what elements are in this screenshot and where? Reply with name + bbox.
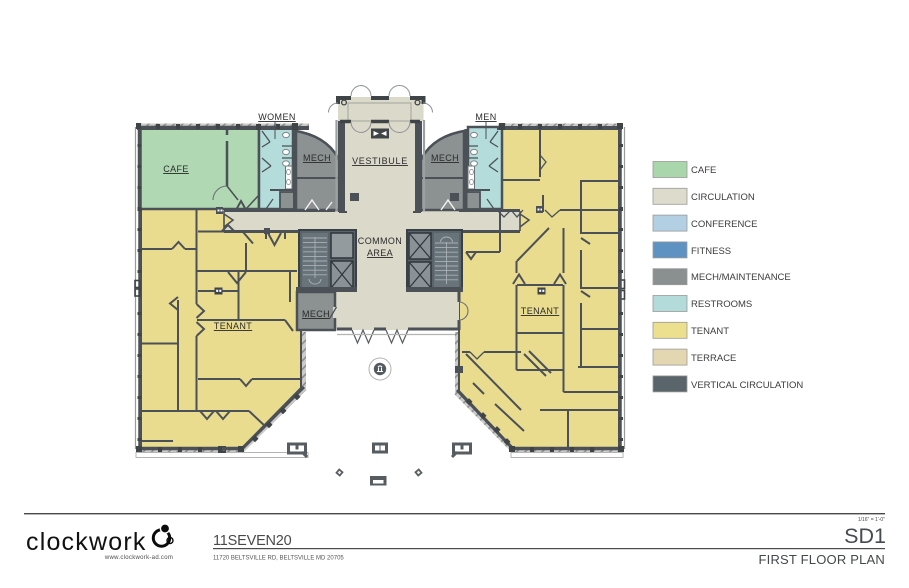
svg-text:MEN: MEN	[475, 112, 496, 122]
svg-text:TENANT: TENANT	[214, 321, 253, 331]
svg-text:FIRST FLOOR PLAN: FIRST FLOOR PLAN	[759, 552, 885, 567]
svg-text:TERRACE: TERRACE	[691, 353, 736, 364]
svg-text:MECH: MECH	[431, 153, 459, 163]
svg-text:SD1: SD1	[844, 524, 886, 548]
svg-text:MECH/MAINTENANCE: MECH/MAINTENANCE	[691, 272, 791, 283]
svg-text:11SEVEN20: 11SEVEN20	[213, 533, 292, 549]
svg-text:WOMEN: WOMEN	[258, 112, 296, 122]
svg-text:VERTICAL CIRCULATION: VERTICAL CIRCULATION	[691, 380, 803, 391]
svg-text:VESTIBULE: VESTIBULE	[352, 156, 408, 166]
svg-text:clockwork: clockwork	[26, 528, 147, 556]
svg-text:TENANT: TENANT	[691, 326, 729, 337]
svg-text:CAFE: CAFE	[691, 165, 716, 176]
svg-text:1/16" = 1'-0": 1/16" = 1'-0"	[858, 517, 885, 523]
svg-text:TENANT: TENANT	[521, 306, 560, 316]
svg-text:RESTROOMS: RESTROOMS	[691, 299, 752, 310]
svg-text:COMMON: COMMON	[358, 236, 402, 246]
svg-text:AREA: AREA	[367, 248, 393, 258]
svg-text:MECH: MECH	[302, 309, 330, 319]
svg-text:MECH: MECH	[303, 153, 331, 163]
svg-text:CAFE: CAFE	[163, 164, 189, 174]
svg-text:11720 BELTSVILLE RD, BELTSVILL: 11720 BELTSVILLE RD, BELTSVILLE MD 20705	[213, 556, 344, 562]
svg-text:FITNESS: FITNESS	[691, 246, 731, 257]
svg-text:CONFERENCE: CONFERENCE	[691, 219, 758, 230]
svg-text:CIRCULATION: CIRCULATION	[691, 192, 755, 203]
svg-text:www.clockwork-ad.com: www.clockwork-ad.com	[104, 555, 173, 561]
